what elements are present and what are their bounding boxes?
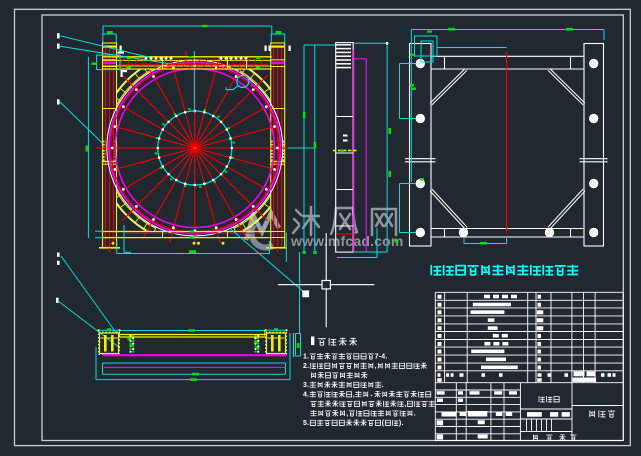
svg-text:.: . xyxy=(307,392,309,399)
svg-text:.: . xyxy=(307,363,309,370)
svg-text:.: . xyxy=(307,354,309,361)
svg-text:,: , xyxy=(346,411,348,418)
svg-text:.: . xyxy=(402,420,404,427)
svg-text:.: . xyxy=(382,382,384,389)
svg-text:.: . xyxy=(307,382,309,389)
svg-text:,: , xyxy=(375,363,377,370)
svg-text:.: . xyxy=(307,420,309,427)
svg-text:www.mfcad.com: www.mfcad.com xyxy=(290,233,404,249)
svg-text:,: , xyxy=(353,392,355,399)
svg-text:,: , xyxy=(404,401,406,408)
svg-text:.: . xyxy=(386,354,388,361)
svg-text:.: . xyxy=(414,411,416,418)
